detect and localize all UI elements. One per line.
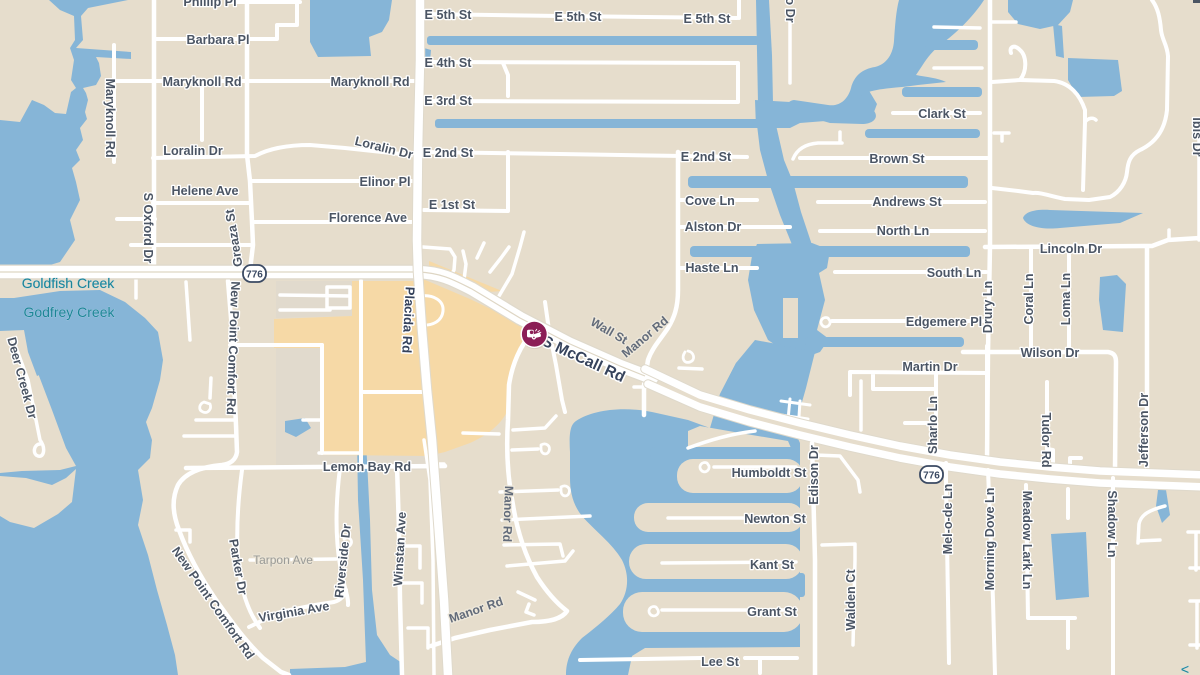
svg-text:Maryknoll Rd: Maryknoll Rd	[330, 75, 409, 89]
svg-text:Tudor Rd: Tudor Rd	[1039, 412, 1053, 467]
svg-text:Goldfish Creek: Goldfish Creek	[22, 275, 116, 291]
svg-text:Haste Ln: Haste Ln	[685, 261, 738, 275]
svg-text:Maryknoll Rd: Maryknoll Rd	[162, 75, 241, 89]
svg-text:North Ln: North Ln	[877, 224, 929, 238]
svg-text:Wilson Dr: Wilson Dr	[1021, 346, 1080, 360]
svg-text:Helene Ave: Helene Ave	[172, 184, 239, 198]
svg-text:Jefferson Dr: Jefferson Dr	[1137, 393, 1151, 467]
svg-text:Alston Dr: Alston Dr	[685, 220, 742, 234]
svg-text:Edgemere Pl: Edgemere Pl	[906, 315, 982, 329]
svg-text:South Ln: South Ln	[927, 266, 982, 280]
svg-text:Grant St: Grant St	[747, 605, 797, 619]
svg-text:Coral Ln: Coral Ln	[1022, 273, 1036, 324]
svg-text:Maryknoll Rd: Maryknoll Rd	[103, 78, 117, 157]
svg-text:Ibis Dr: Ibis Dr	[1190, 117, 1200, 156]
svg-text:Andrews St: Andrews St	[872, 195, 942, 209]
svg-text:E 1st St: E 1st St	[429, 198, 476, 212]
svg-text:Lemon Bay Rd: Lemon Bay Rd	[323, 460, 411, 474]
svg-text:E 2nd St: E 2nd St	[681, 150, 732, 164]
svg-text:Edison Dr: Edison Dr	[807, 445, 821, 505]
svg-text:Lincoln Dr: Lincoln Dr	[1040, 242, 1102, 256]
svg-text:E 4th St: E 4th St	[425, 56, 473, 70]
svg-text:<: <	[1181, 661, 1189, 675]
svg-text:Godfrey Creek: Godfrey Creek	[23, 304, 115, 320]
svg-text:Clark St: Clark St	[918, 107, 966, 121]
svg-text:Drury Ln: Drury Ln	[981, 281, 995, 333]
svg-text:E 5th St: E 5th St	[425, 8, 473, 22]
svg-text:Humboldt St: Humboldt St	[732, 466, 808, 480]
svg-text:Sharlo Ln: Sharlo Ln	[926, 396, 940, 454]
svg-text:Phillip Pl: Phillip Pl	[183, 0, 236, 9]
svg-text:E 3rd St: E 3rd St	[424, 94, 472, 108]
svg-text:Tarpon Ave: Tarpon Ave	[253, 553, 313, 567]
svg-text:Loma Ln: Loma Ln	[1059, 273, 1073, 325]
svg-text:776: 776	[246, 270, 263, 281]
svg-text:Cove Ln: Cove Ln	[685, 194, 735, 208]
svg-text:776: 776	[923, 471, 940, 482]
svg-text:E 5th St: E 5th St	[555, 10, 603, 24]
svg-text:Meadow Lark Ln: Meadow Lark Ln	[1020, 491, 1034, 590]
svg-text:Manor Rd: Manor Rd	[500, 486, 516, 543]
svg-text:S Oxford Dr: S Oxford Dr	[141, 193, 155, 264]
svg-text:Brown St: Brown St	[869, 152, 925, 166]
svg-text:Newton St: Newton St	[744, 512, 806, 526]
svg-text:Martin Dr: Martin Dr	[902, 360, 957, 374]
svg-text:Walden Ct: Walden Ct	[844, 569, 858, 631]
svg-text:Kant St: Kant St	[750, 558, 795, 572]
svg-text:E 2nd St: E 2nd St	[423, 146, 474, 160]
svg-text:o Dr: o Dr	[783, 0, 797, 23]
svg-text:Barbara Pl: Barbara Pl	[187, 33, 250, 47]
svg-text:Shadow Ln: Shadow Ln	[1105, 490, 1119, 557]
svg-text:Mel-o-de Ln: Mel-o-de Ln	[941, 484, 955, 555]
svg-text:E 5th St: E 5th St	[684, 12, 732, 26]
svg-text:Lee St: Lee St	[701, 655, 740, 669]
svg-text:Morning Dove Ln: Morning Dove Ln	[983, 488, 997, 591]
svg-text:Loralin Dr: Loralin Dr	[163, 144, 223, 158]
svg-text:Elinor Pl: Elinor Pl	[359, 175, 410, 189]
svg-text:Florence Ave: Florence Ave	[329, 211, 407, 225]
